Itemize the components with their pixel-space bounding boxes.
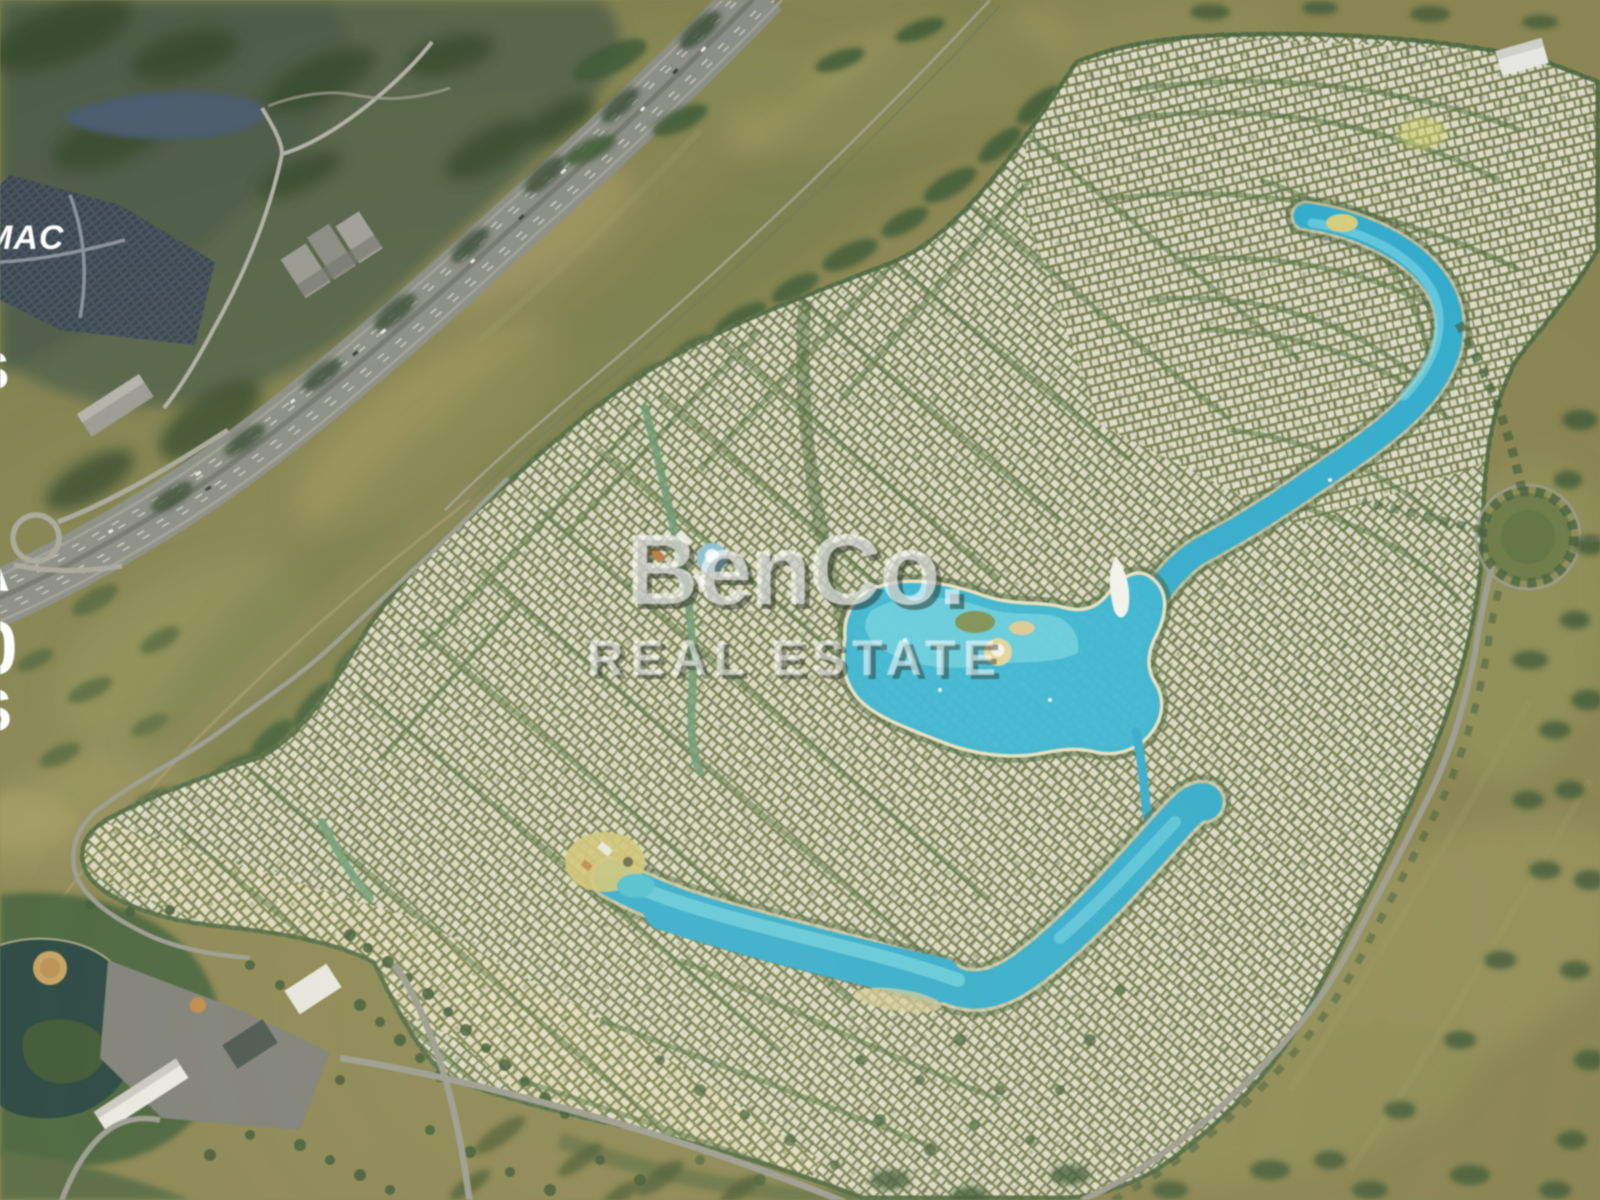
svg-text:S: S: [0, 342, 9, 401]
svg-text:A: A: [0, 498, 11, 614]
svg-text:S: S: [0, 677, 12, 744]
svg-text:BenCo.: BenCo.: [626, 514, 964, 626]
svg-text:MAC: MAC: [0, 219, 64, 257]
svg-text:REAL ESTATE: REAL ESTATE: [587, 630, 1003, 686]
